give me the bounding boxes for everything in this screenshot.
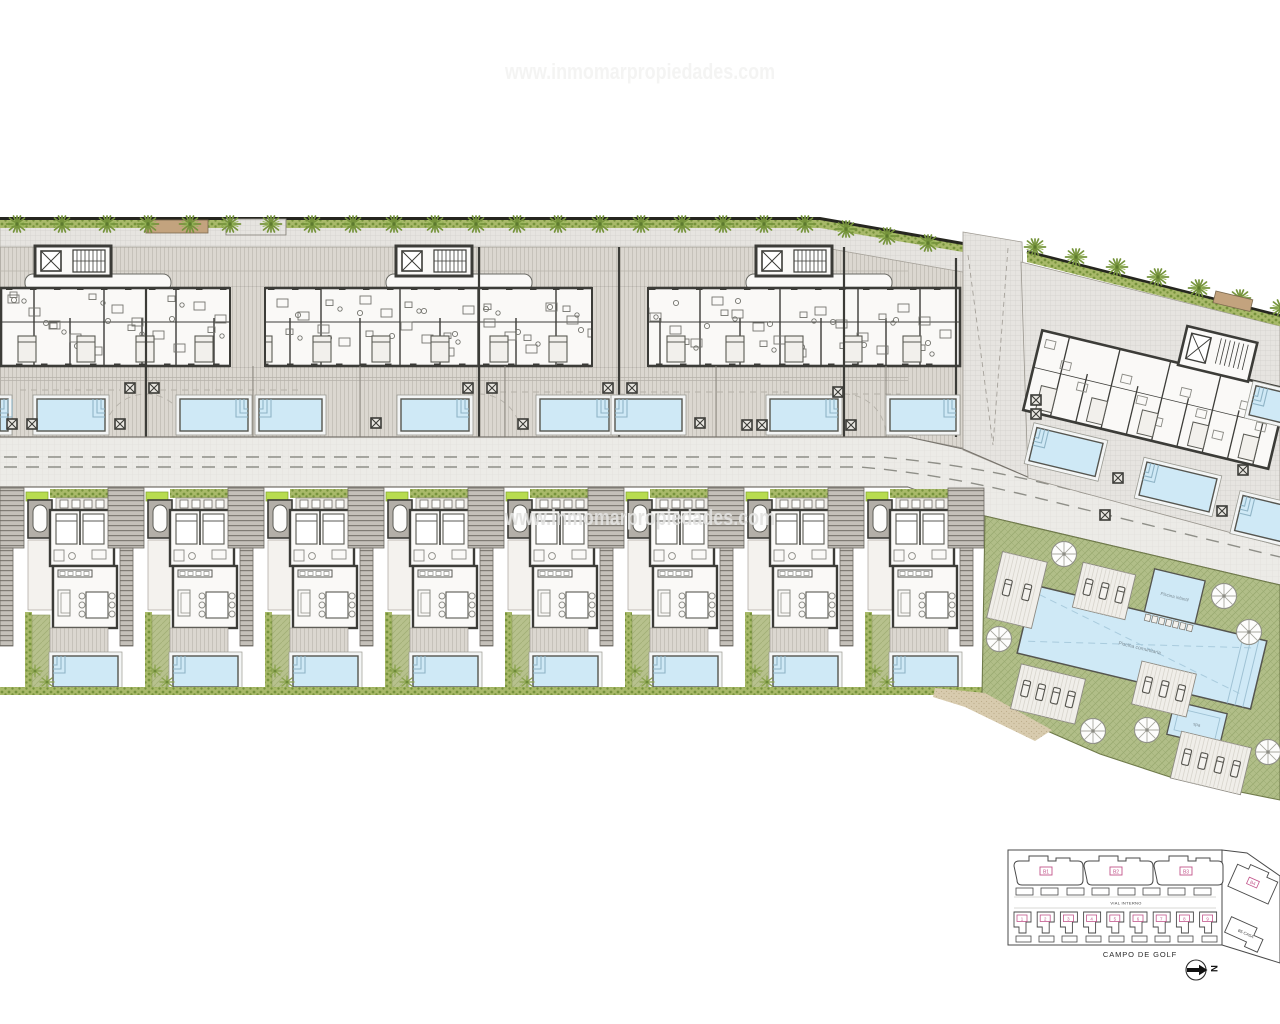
svg-text:CAMPO DE GOLF: CAMPO DE GOLF	[1103, 950, 1177, 959]
svg-text:B1: B1	[1043, 870, 1049, 876]
svg-text:www.inmomarpropiedades.com: www.inmomarpropiedades.com	[504, 505, 775, 530]
svg-text:B2: B2	[1113, 870, 1119, 876]
svg-text:VIAL INTERNO: VIAL INTERNO	[1110, 901, 1141, 906]
svg-text:N: N	[1208, 965, 1219, 972]
svg-text:www.inmomarpropiedades.com: www.inmomarpropiedades.com	[504, 59, 775, 84]
svg-text:B3: B3	[1183, 870, 1189, 876]
